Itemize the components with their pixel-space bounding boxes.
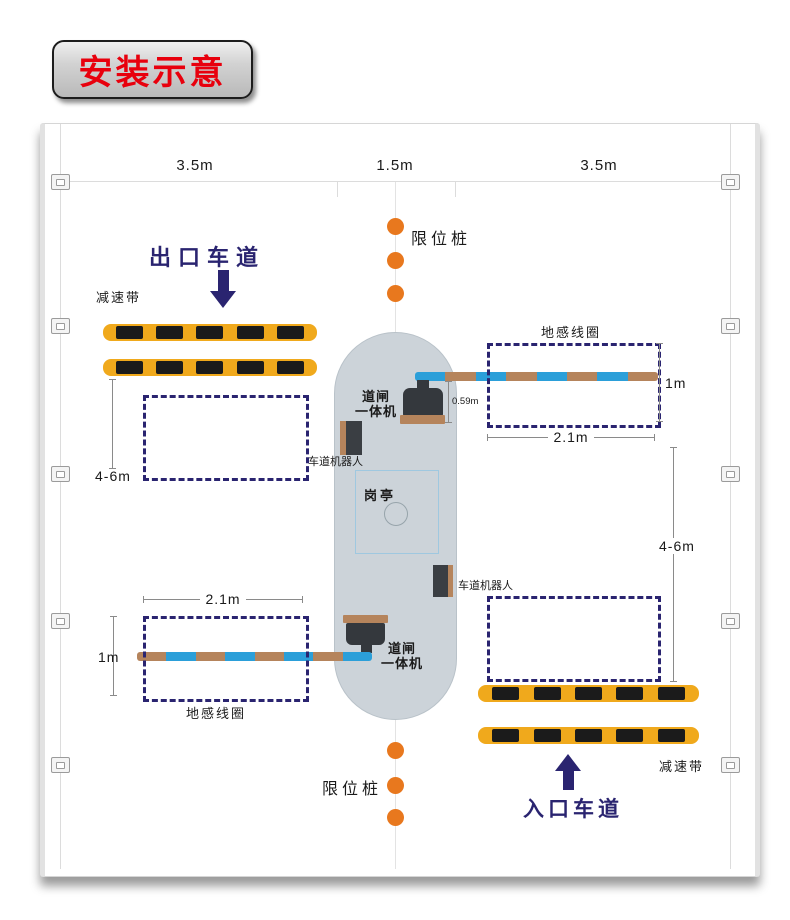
barrier-gate-label-top: 道闸 一体机 <box>350 389 402 419</box>
bump-block <box>616 687 643 700</box>
bump-block <box>658 729 685 742</box>
limit-post-dot <box>387 218 404 235</box>
page-title: 安装示意 <box>79 45 227 94</box>
dim-line-barrier-drop <box>448 381 449 423</box>
barrier-gate-machine <box>403 388 443 416</box>
speed-bump-label-left: 减速带 <box>96 287 141 306</box>
arm-segment <box>445 372 475 381</box>
edge-marker <box>51 174 70 190</box>
barrier-gate-label-line1: 道闸 <box>350 389 402 404</box>
bump-block <box>575 729 602 742</box>
dim-label-entry-coil-distance: 4-6m <box>656 538 698 554</box>
limit-post-dot <box>387 252 404 269</box>
lane-robot <box>340 421 362 455</box>
bump-block <box>196 361 223 374</box>
induction-coil-zone <box>487 343 661 428</box>
edge-marker <box>51 613 70 629</box>
bump-block <box>277 361 304 374</box>
limit-post-dot <box>387 742 404 759</box>
lane-robot-label-top: 车道机器人 <box>308 453 363 469</box>
bump-block <box>156 361 183 374</box>
bump-block <box>277 326 304 339</box>
edge-marker <box>51 466 70 482</box>
limit-post-label-top: 限位桩 <box>411 225 471 249</box>
dim-line-coil-width-right <box>659 343 660 422</box>
induction-coil-label-bottom: 地感线圈 <box>166 703 266 722</box>
edge-marker-core <box>56 179 65 186</box>
dim-label-exit-coil-distance: 4-6m <box>95 468 131 484</box>
edge-marker <box>721 174 740 190</box>
barrier-gate-machine-base <box>343 615 388 623</box>
dim-line-exit-coil-distance <box>112 379 113 469</box>
edge-marker-core <box>726 618 735 625</box>
bump-block <box>196 326 223 339</box>
limit-post-label-bottom: 限位桩 <box>322 775 382 799</box>
bump-block <box>492 729 519 742</box>
edge-marker-core <box>726 762 735 769</box>
entrance-direction-arrow-head <box>555 754 581 771</box>
dim-value: 2.1m <box>548 429 593 445</box>
limit-post-dot <box>387 777 404 794</box>
lane-robot-label-bottom: 车道机器人 <box>458 577 513 593</box>
barrier-gate-machine <box>346 623 385 645</box>
dim-label-coil-width-left: 1m <box>98 649 119 665</box>
speed-bump <box>103 359 317 376</box>
induction-coil-label-top: 地感线圈 <box>521 322 621 341</box>
top-measure-line <box>60 181 730 182</box>
speed-bump-label-right: 减速带 <box>659 756 704 775</box>
bump-block <box>237 361 264 374</box>
bump-block <box>116 361 143 374</box>
dim-label-left-lane: 3.5m <box>160 157 230 174</box>
barrier-gate-label-line2: 一体机 <box>381 656 423 671</box>
barrier-gate-machine-base <box>400 415 445 424</box>
bump-block <box>575 687 602 700</box>
booth-circle-marker <box>384 502 408 526</box>
lane-robot-body <box>433 565 448 597</box>
lane-robot <box>433 565 453 597</box>
edge-marker <box>721 318 740 334</box>
edge-marker <box>721 613 740 629</box>
dim-line-entry-coil-distance <box>673 447 674 682</box>
edge-marker-core <box>56 323 65 330</box>
edge-marker-core <box>726 323 735 330</box>
entrance-direction-arrow <box>563 770 574 790</box>
page-background: 安装示意 3.5m 1.5m 3.5m 出口车道 限位桩 减速带 4-6m 岗亭 <box>0 0 790 920</box>
edge-marker-core <box>726 179 735 186</box>
barrier-gate-label-bottom: 道闸 一体机 <box>381 641 423 671</box>
bump-block <box>492 687 519 700</box>
edge-marker <box>51 757 70 773</box>
limit-post-dot <box>387 809 404 826</box>
guard-booth: 岗亭 <box>355 470 439 554</box>
guard-booth-label: 岗亭 <box>364 485 396 504</box>
lane-divider-tick-left <box>337 181 338 197</box>
limit-post-dot <box>387 285 404 302</box>
lane-robot-panel <box>448 565 453 597</box>
speed-bump <box>478 685 699 702</box>
speed-bump <box>103 324 317 341</box>
lane-robot-body <box>346 421 362 455</box>
bump-block <box>616 729 643 742</box>
arm-segment <box>343 652 372 661</box>
install-title-badge: 安装示意 <box>52 40 253 99</box>
bump-block <box>116 326 143 339</box>
dim-value: 2.1m <box>200 591 245 607</box>
bump-block <box>658 687 685 700</box>
edge-marker-core <box>726 471 735 478</box>
dim-label-coil-width-right: 1m <box>665 375 686 391</box>
induction-coil-zone <box>143 395 309 481</box>
edge-marker-core <box>56 471 65 478</box>
dim-label-island: 1.5m <box>360 157 430 174</box>
edge-marker <box>721 466 740 482</box>
entrance-lane-label: 入口车道 <box>523 793 623 823</box>
edge-marker-core <box>56 618 65 625</box>
barrier-gate-label-line1: 道闸 <box>381 641 423 656</box>
bump-block <box>237 326 264 339</box>
edge-marker <box>721 757 740 773</box>
arm-segment <box>313 652 342 661</box>
induction-coil-zone <box>143 616 309 702</box>
speed-bump <box>478 727 699 744</box>
exit-direction-arrow <box>218 270 229 292</box>
dim-label-coil-length-right: 2.1m <box>487 429 655 445</box>
dim-label-right-lane: 3.5m <box>564 157 634 174</box>
induction-coil-zone <box>487 596 661 682</box>
exit-direction-arrow-head <box>210 291 236 308</box>
edge-marker <box>51 318 70 334</box>
dim-label-coil-length-left: 2.1m <box>143 591 303 607</box>
barrier-gate-label-line2: 一体机 <box>350 404 402 419</box>
lane-divider-tick-right <box>455 181 456 197</box>
bump-block <box>534 729 561 742</box>
dim-label-barrier-drop: 0.59m <box>452 396 478 407</box>
bump-block <box>534 687 561 700</box>
exit-lane-label: 出口车道 <box>149 240 265 272</box>
bump-block <box>156 326 183 339</box>
edge-marker-core <box>56 762 65 769</box>
